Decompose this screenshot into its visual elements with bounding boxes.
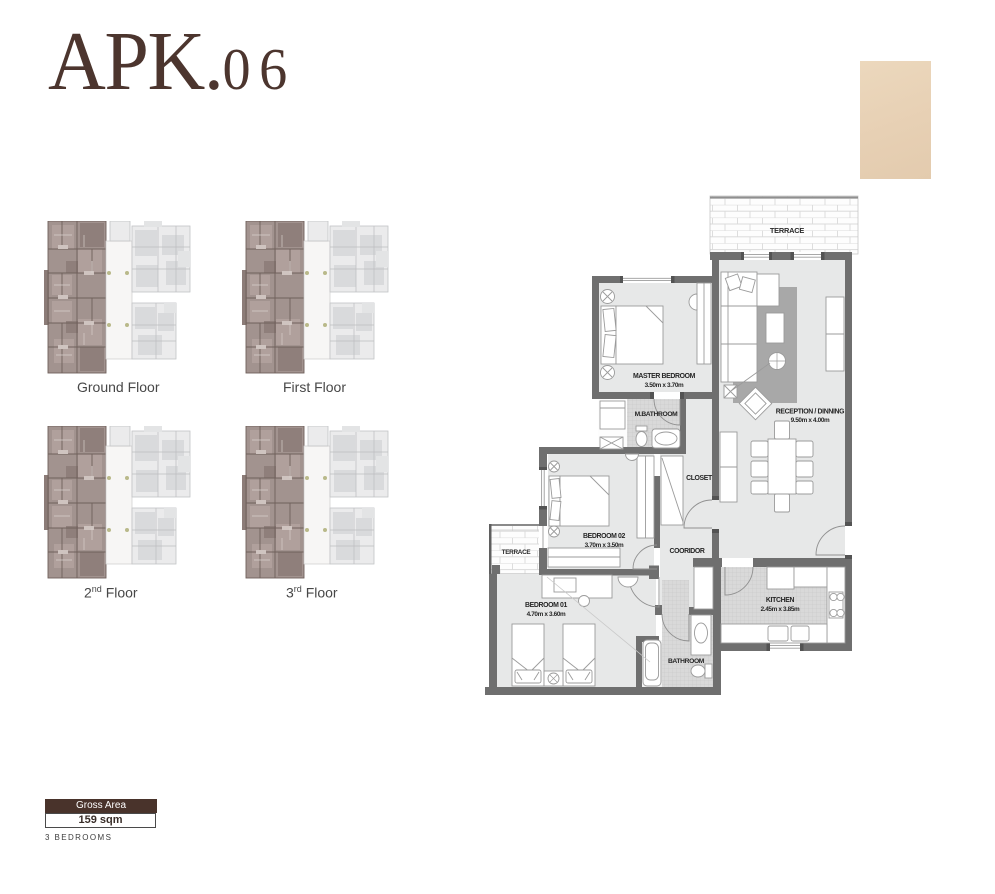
svg-text:2.45m x 3.85m: 2.45m x 3.85m [761,606,800,613]
svg-text:TERRACE: TERRACE [502,549,532,556]
svg-text:BATHROOM: BATHROOM [668,658,705,665]
svg-text:BEDROOM 02: BEDROOM 02 [583,533,626,540]
svg-text:TERRACE: TERRACE [770,226,805,235]
svg-text:CLOSET: CLOSET [686,475,713,482]
svg-text:COORIDOR: COORIDOR [669,548,704,555]
svg-text:M.BATHROOM: M.BATHROOM [635,411,679,418]
svg-text:KITCHEN: KITCHEN [766,597,795,604]
svg-text:9.50m x 4.00m: 9.50m x 4.00m [791,417,830,424]
svg-text:RECEPTION / DINNING: RECEPTION / DINNING [776,409,844,416]
svg-text:3.70m x 3.50m: 3.70m x 3.50m [585,542,624,549]
svg-text:3.50m x 3.70m: 3.50m x 3.70m [645,382,684,389]
svg-text:MASTER BEDROOM: MASTER BEDROOM [633,373,696,380]
svg-text:4.70m x 3.60m: 4.70m x 3.60m [527,611,566,618]
svg-text:BEDROOM 01: BEDROOM 01 [525,602,568,609]
